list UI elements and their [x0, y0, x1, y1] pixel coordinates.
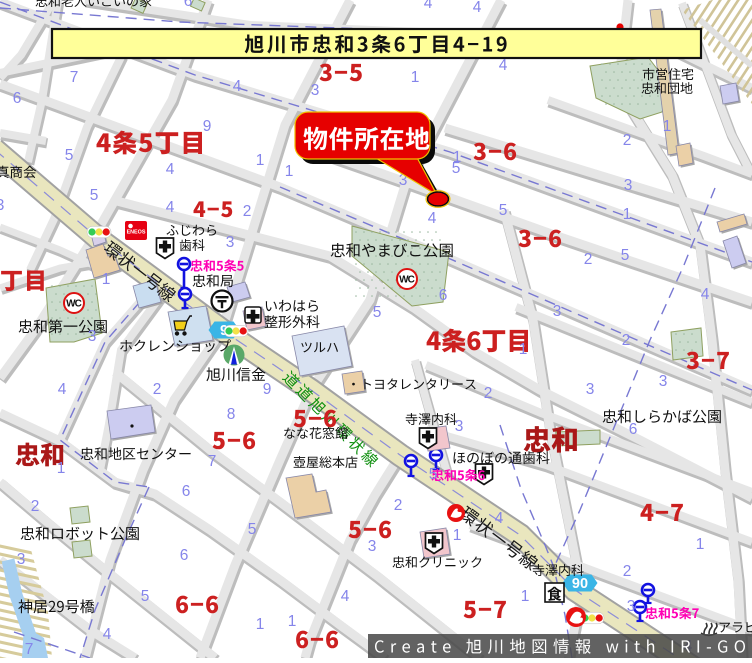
svg-text:1: 1 [256, 616, 265, 633]
svg-text:4: 4 [58, 381, 67, 398]
svg-text:9: 9 [263, 381, 272, 398]
svg-text:6: 6 [184, 0, 193, 10]
svg-text:6: 6 [629, 421, 638, 438]
svg-text:6: 6 [182, 483, 191, 500]
svg-text:7: 7 [70, 69, 79, 86]
svg-text:4: 4 [166, 199, 175, 216]
svg-text:1: 1 [453, 527, 462, 544]
svg-text:4: 4 [233, 78, 242, 95]
svg-text:4: 4 [701, 286, 710, 303]
svg-text:7: 7 [25, 641, 34, 658]
svg-text:5: 5 [373, 304, 382, 321]
svg-text:3: 3 [226, 234, 235, 251]
svg-text:5: 5 [248, 521, 257, 538]
svg-text:1: 1 [57, 460, 66, 477]
svg-text:4: 4 [341, 588, 350, 605]
svg-text:1: 1 [623, 206, 632, 223]
svg-text:2: 2 [153, 381, 162, 398]
svg-text:4: 4 [499, 57, 508, 74]
svg-text:5: 5 [429, 466, 438, 483]
svg-text:2: 2 [623, 563, 632, 580]
svg-text:2: 2 [484, 385, 493, 402]
svg-text:9: 9 [203, 118, 212, 135]
svg-text:3: 3 [455, 418, 464, 435]
svg-text:4: 4 [424, 0, 433, 12]
svg-text:6: 6 [439, 287, 448, 304]
svg-text:1: 1 [663, 118, 672, 135]
svg-text:3: 3 [368, 538, 377, 555]
svg-text:2: 2 [394, 497, 403, 514]
svg-text:2: 2 [623, 132, 632, 149]
svg-text:3: 3 [659, 373, 668, 390]
svg-text:1: 1 [696, 536, 705, 553]
svg-text:WC: WC [399, 275, 414, 286]
svg-text:5: 5 [499, 202, 508, 219]
svg-text:4: 4 [428, 210, 437, 227]
svg-text:5: 5 [141, 588, 150, 605]
svg-text:5: 5 [621, 247, 630, 264]
svg-text:2: 2 [622, 332, 631, 349]
svg-text:4: 4 [103, 626, 112, 643]
svg-text:4: 4 [473, 0, 482, 16]
svg-text:2: 2 [243, 203, 252, 220]
svg-text:4: 4 [166, 161, 175, 178]
svg-text:3: 3 [586, 381, 595, 398]
svg-text:6: 6 [180, 547, 189, 564]
svg-text:3: 3 [0, 197, 4, 214]
svg-text:3: 3 [553, 303, 562, 320]
svg-text:90: 90 [572, 576, 588, 592]
svg-text:ENEOS: ENEOS [127, 230, 146, 236]
svg-text:3: 3 [17, 551, 26, 568]
svg-text:1: 1 [102, 271, 111, 288]
svg-text:6: 6 [13, 90, 22, 107]
svg-text:2: 2 [31, 498, 40, 515]
svg-text:1: 1 [285, 163, 294, 180]
svg-text:3: 3 [311, 82, 320, 99]
svg-text:4: 4 [495, 510, 504, 527]
svg-text:5: 5 [452, 160, 461, 177]
svg-text:5: 5 [65, 147, 74, 164]
svg-text:WC: WC [66, 299, 81, 310]
svg-text:1: 1 [411, 69, 420, 86]
svg-text:3: 3 [624, 177, 633, 194]
svg-text:2: 2 [584, 251, 593, 268]
svg-text:3: 3 [627, 598, 636, 615]
svg-text:1: 1 [521, 588, 530, 605]
svg-text:5: 5 [90, 187, 99, 204]
svg-text:1: 1 [288, 613, 297, 630]
svg-text:3: 3 [88, 328, 97, 345]
svg-text:8: 8 [227, 406, 236, 423]
svg-text:1: 1 [519, 341, 528, 358]
svg-text:7: 7 [208, 453, 217, 470]
svg-text:1: 1 [256, 152, 265, 169]
